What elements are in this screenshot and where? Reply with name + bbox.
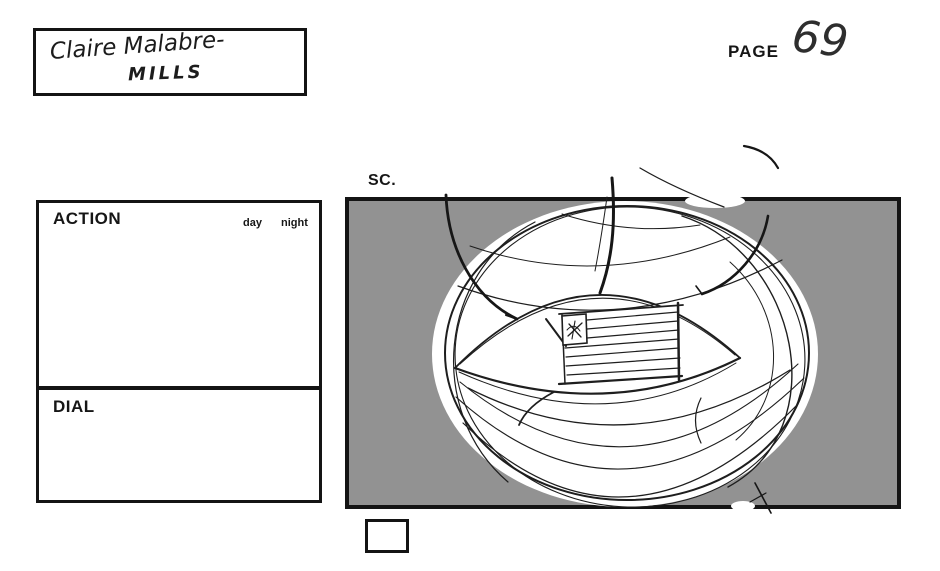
action-dial-box: ACTION day night DIAL [36,200,322,503]
dial-label: DIAL [53,397,95,417]
action-dial-divider [39,386,319,390]
american-flag [546,303,683,384]
storyboard-page: Claire Malabre- MILLS PAGE 69 SC. ACTION… [0,0,940,571]
artist-name-line1: Claire Malabre- [49,27,225,65]
storyboard-panel [330,140,915,525]
artist-name-box: Claire Malabre- MILLS [33,28,307,96]
page-number: 69 [789,11,851,68]
artist-name-line2: MILLS [128,62,204,86]
night-label: night [281,217,308,229]
page-label: PAGE [728,42,779,62]
day-label: day [243,217,262,229]
panel-number-box [365,519,409,553]
action-label: ACTION [53,209,121,229]
